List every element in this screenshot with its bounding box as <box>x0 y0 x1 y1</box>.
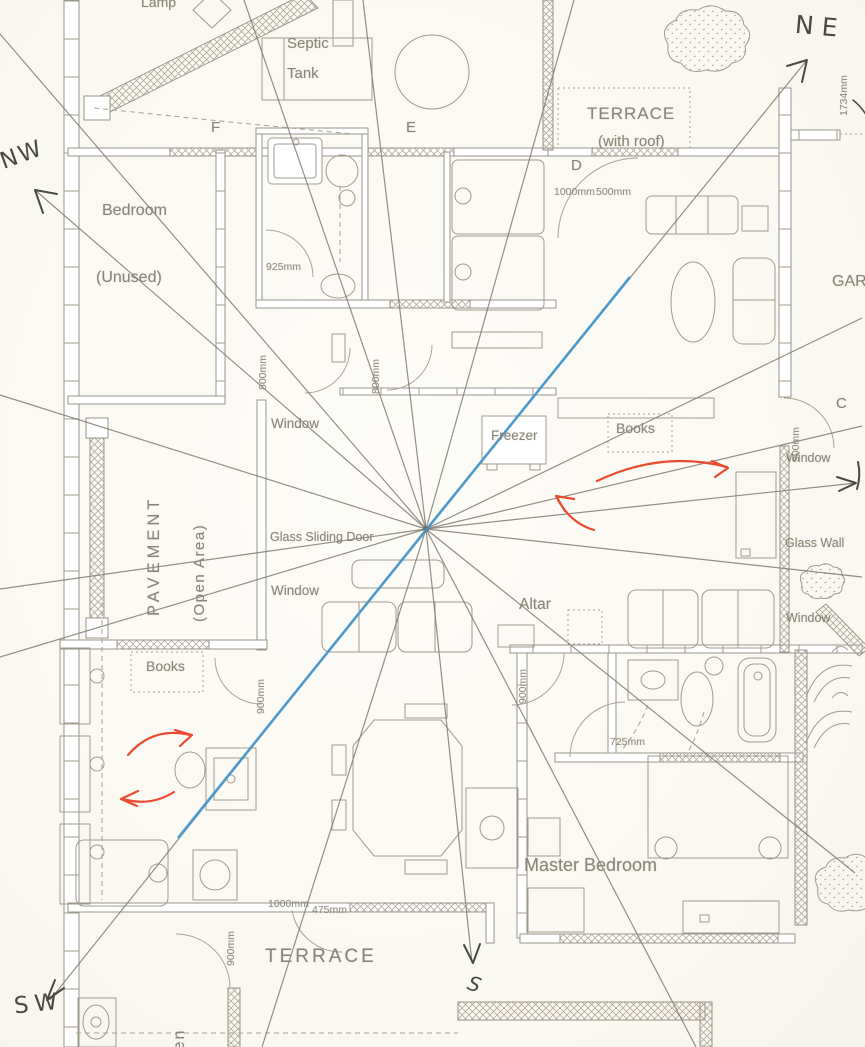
dimension-1000mm-door: 1000mm <box>554 187 595 198</box>
septic-tank-label-2: Tank <box>287 66 319 81</box>
altar-label: Altar <box>519 597 551 613</box>
e-arrowhead <box>837 462 859 491</box>
s-arrowhead <box>464 944 480 963</box>
grid-marker-c: C <box>836 396 847 411</box>
altar-cabinet <box>498 625 534 647</box>
dimension-925mm: 925mm <box>266 262 301 273</box>
dimension-475mm: 475mm <box>312 905 347 916</box>
window-label-right-upper: Window <box>786 452 830 465</box>
walls <box>60 0 865 1047</box>
dimension-725mm: 725mm <box>610 737 645 748</box>
floor-plan-scan: Lamp Septic Tank F E D C Bedroom (Unused… <box>0 0 865 1047</box>
compass-sw-label: SW <box>13 990 64 1018</box>
room-label-terrace-roof: TERRACE <box>587 105 675 122</box>
shrub-bottom-right <box>815 854 865 911</box>
vegetation <box>664 6 865 911</box>
room-label-terrace-bottom: TERRACE <box>265 947 377 966</box>
lamp-label: Lamp <box>141 0 176 9</box>
septic-tank-label-1: Septic <box>287 36 329 51</box>
room-label-bedroom: Bedroom <box>102 203 167 219</box>
lamp-symbol <box>193 0 231 28</box>
dimension-1734mm: 1734mm <box>839 75 850 116</box>
books-label-right: Books <box>616 421 655 435</box>
compass-ne-label: NE <box>794 12 846 41</box>
dimension-500mm-door: 500mm <box>596 187 631 198</box>
grid-marker-e: E <box>406 120 416 135</box>
floor-plan-drawing <box>0 0 865 1047</box>
dining-table <box>332 704 518 874</box>
ne-ink-curve <box>853 100 865 130</box>
room-label-master-bedroom: Master Bedroom <box>524 856 657 874</box>
window-label-center: Window <box>271 584 319 598</box>
utility-dashed-line <box>94 108 352 134</box>
window-label-left: Window <box>271 417 319 431</box>
room-label-bedroom-note: (Unused) <box>96 270 162 286</box>
freezer-label: Freezer <box>491 429 538 443</box>
shrub-small <box>800 564 844 599</box>
glass-sliding-door-label: Glass Sliding Door <box>270 531 374 544</box>
dimension-800mm-door-2: 800mm <box>371 359 382 394</box>
shrub-top <box>664 6 749 72</box>
room-label-garden: GAR <box>832 274 865 290</box>
room-label-pavement: PAVEMENT <box>146 496 163 616</box>
glass-wall-label: Glass Wall <box>785 537 844 550</box>
room-label-pavement-note: (Open Area) <box>192 524 207 622</box>
window-label-right-lower: Window <box>786 612 830 625</box>
books-label-left: Books <box>146 659 185 673</box>
room-label-terrace-roof-note: (with roof) <box>598 134 665 149</box>
dimension-900mm-wc-door: 900mm <box>256 679 267 714</box>
garden-umbrella-2 <box>806 692 852 748</box>
dimension-900mm-altar-door: 900mm <box>518 669 529 704</box>
grid-marker-f: F <box>211 120 220 135</box>
dimension-1000mm-bottom: 1000mm <box>268 899 309 910</box>
flow-arrow-right <box>597 461 727 481</box>
grid-marker-d: D <box>571 158 582 173</box>
door-arcs <box>176 158 834 988</box>
room-label-kitchen: Kitchen <box>172 1029 188 1047</box>
dimension-800mm-door-1: 800mm <box>258 355 269 390</box>
dimension-900mm-kitchen-door: 900mm <box>226 931 237 966</box>
master-bed <box>648 756 788 859</box>
